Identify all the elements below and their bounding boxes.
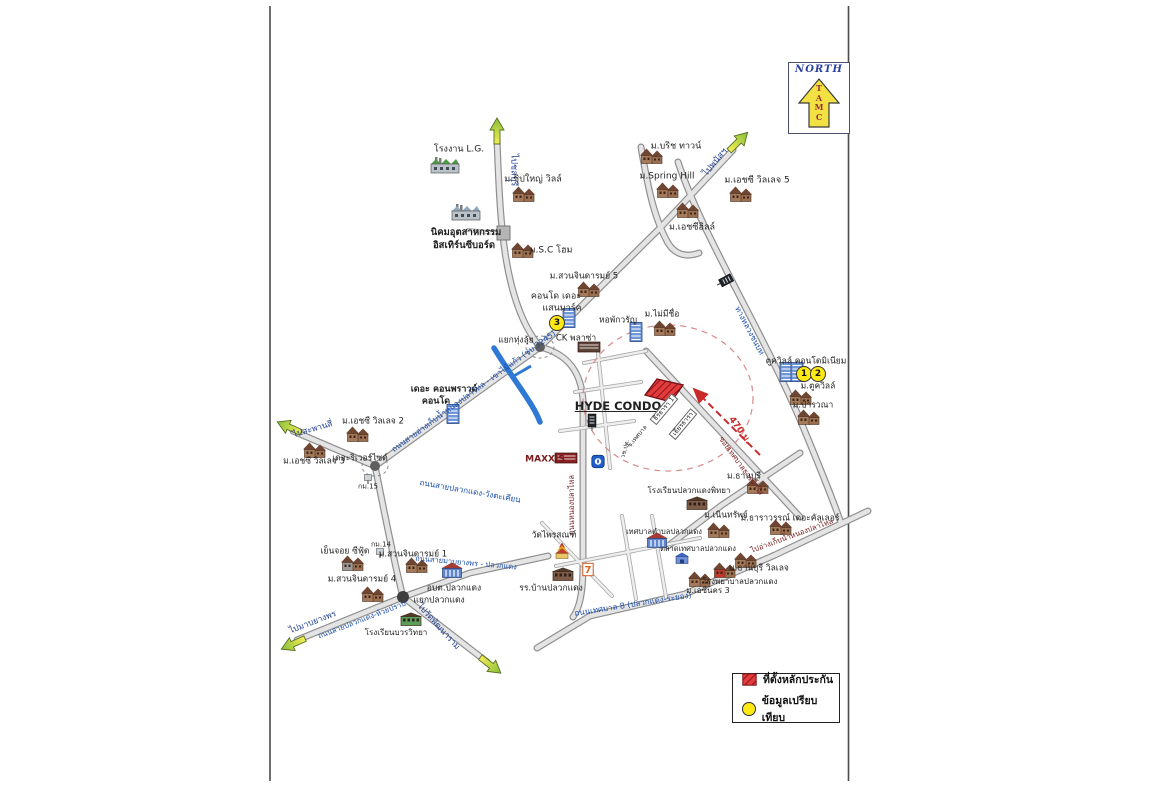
collateral-swatch-icon	[742, 673, 757, 686]
page-borders	[270, 6, 849, 781]
legend-row-collateral: ที่ตั้งหลักประกัน	[742, 671, 839, 688]
legend-collateral-label: ที่ตั้งหลักประกัน	[763, 671, 833, 688]
scanned-map-page: 7	[0, 0, 1152, 787]
legend-row-comparison: ข้อมูลเปรียบเทียบ	[742, 692, 839, 726]
canal	[494, 348, 540, 422]
north-label: NORTH	[789, 64, 849, 75]
north-compass: NORTH T A M C	[788, 62, 850, 134]
arrow-to-mapyangporn-icon	[278, 632, 307, 655]
map-graphics	[0, 0, 1152, 787]
roads	[293, 140, 868, 662]
legend-comparison-label: ข้อมูลเปรียบเทียบ	[762, 692, 839, 726]
arrow-to-chonburi-icon	[490, 118, 504, 144]
distance-arrow	[694, 389, 760, 455]
comparison-swatch-icon	[742, 702, 756, 716]
arrow-to-saphansi-icon	[274, 416, 303, 439]
north-arrow-letters: T A M C	[789, 84, 849, 122]
map-legend: ที่ตั้งหลักประกัน ข้อมูลเปรียบเทียบ	[732, 673, 840, 723]
